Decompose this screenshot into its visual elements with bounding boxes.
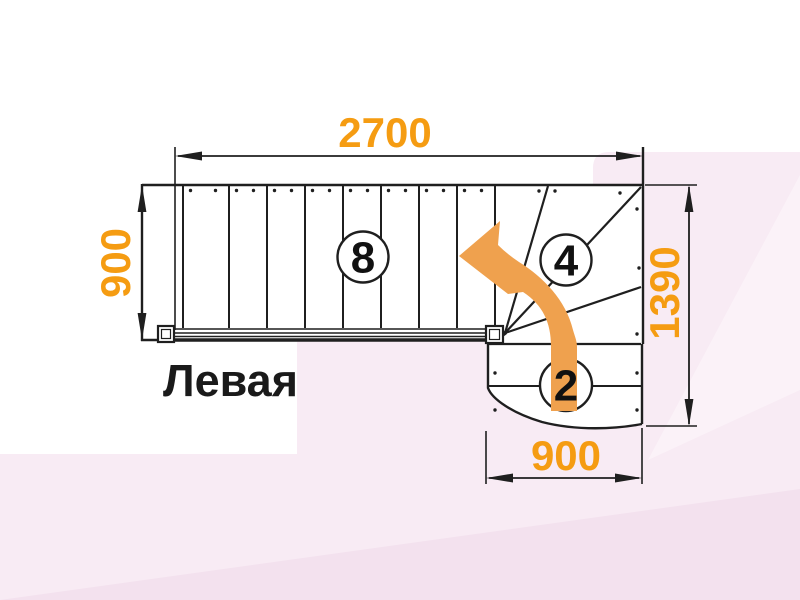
- newel-post-right-inner: [490, 330, 500, 340]
- step-count-badge-straight: 8: [338, 232, 389, 283]
- dimension-label-bottom: 900: [531, 432, 601, 479]
- stair-plan-diagram: 2700 900 1390 900 8 2 4 Ле: [0, 0, 800, 600]
- dimension-label-left: 900: [92, 228, 139, 298]
- dimension-label-right: 1390: [641, 246, 688, 339]
- dimension-label-top: 2700: [338, 109, 431, 156]
- step-count-badge-winder: 4: [541, 235, 592, 286]
- dimension-left: 900: [92, 185, 146, 340]
- newel-post-left-inner: [162, 330, 171, 339]
- plan-title: Левая: [163, 355, 298, 406]
- step-count-winder: 4: [554, 237, 579, 286]
- arrowhead-left: [175, 152, 202, 161]
- step-count-straight: 8: [351, 234, 375, 283]
- step-count-lower: 2: [554, 362, 578, 411]
